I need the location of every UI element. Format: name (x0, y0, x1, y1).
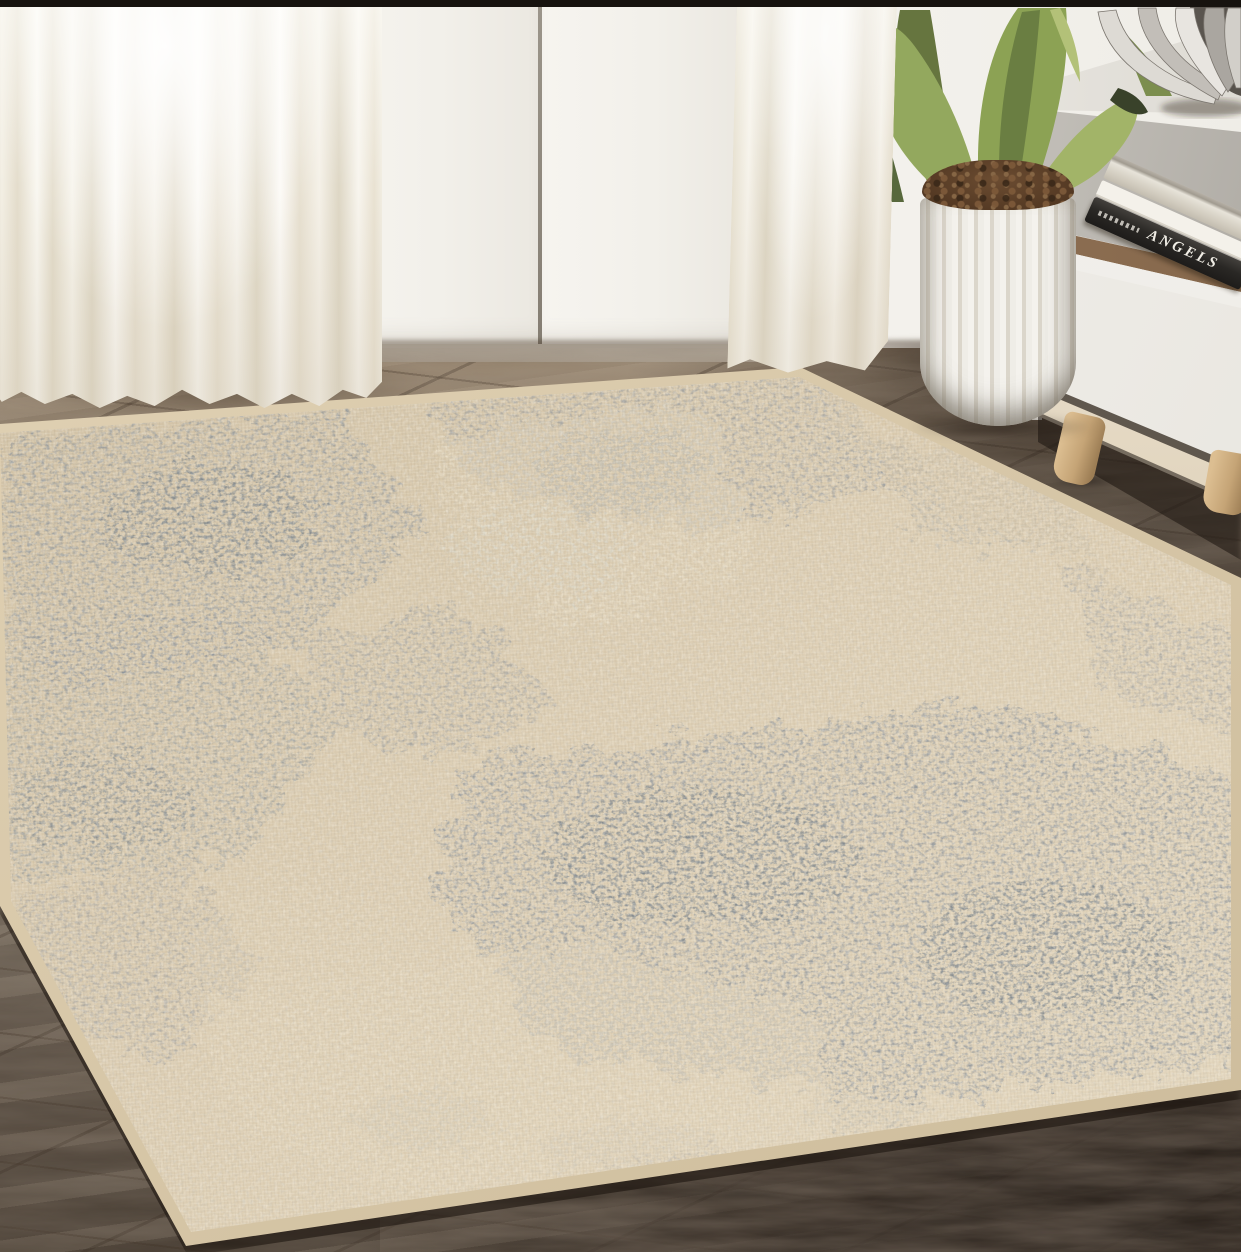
room-photo: ANGELS (0, 0, 1241, 1252)
top-black-bar (0, 0, 1241, 7)
sheer-curtain-right (727, 6, 897, 374)
spine-small-text-marks (1098, 210, 1140, 232)
fluted-planter (920, 198, 1076, 426)
sheer-curtain-left (0, 6, 382, 410)
door-seam (538, 7, 542, 345)
potting-soil (922, 160, 1074, 210)
french-door-right (542, 7, 742, 348)
